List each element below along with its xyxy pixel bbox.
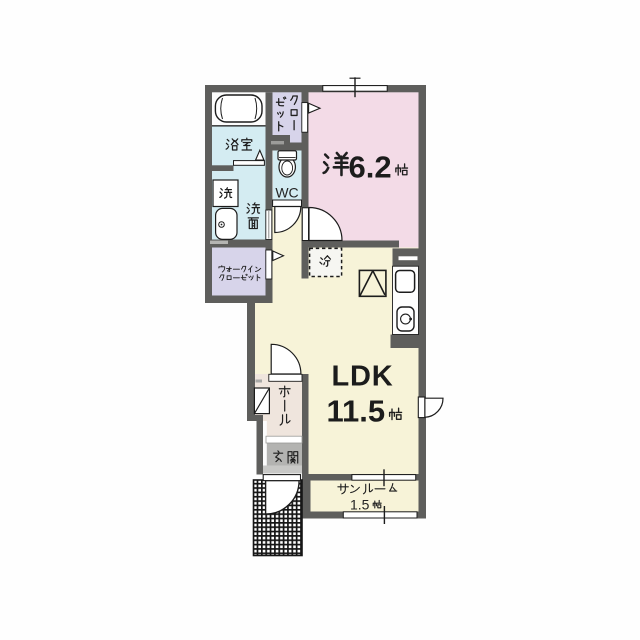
- svg-text:LDK: LDK: [331, 361, 393, 393]
- svg-text:11.5: 11.5: [326, 394, 385, 429]
- svg-text:WC: WC: [275, 184, 298, 200]
- svg-text:1.5: 1.5: [350, 496, 370, 512]
- svg-text:6.2: 6.2: [349, 150, 392, 185]
